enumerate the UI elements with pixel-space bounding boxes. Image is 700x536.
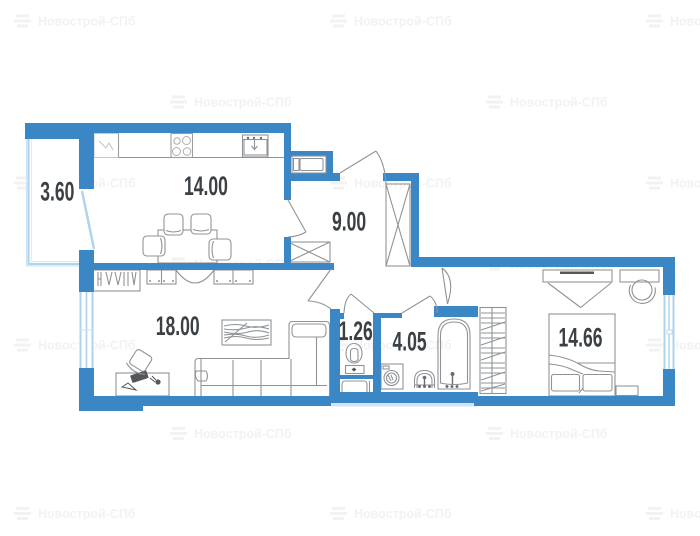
svg-text:Новострой-СПб: Новострой-СПб — [194, 427, 292, 441]
svg-text:4.05: 4.05 — [393, 326, 427, 357]
svg-text:Новострой-СПб: Новострой-СПб — [510, 96, 608, 110]
svg-text:Новострой-СПб: Новострой-СПб — [670, 15, 700, 29]
svg-text:Новострой-СПб: Новострой-СПб — [354, 507, 452, 521]
svg-text:14.00: 14.00 — [184, 170, 228, 201]
svg-text:3.60: 3.60 — [40, 176, 74, 207]
svg-text:Новострой-СПб: Новострой-СПб — [670, 507, 700, 521]
svg-text:Новострой-СПб: Новострой-СПб — [354, 15, 452, 29]
svg-text:Новострой-СПб: Новострой-СПб — [38, 15, 136, 29]
svg-text:Новострой-СПб: Новострой-СПб — [670, 177, 700, 191]
svg-text:14.66: 14.66 — [559, 322, 603, 353]
svg-text:9.00: 9.00 — [332, 206, 366, 237]
svg-text:18.00: 18.00 — [156, 310, 200, 341]
svg-text:Новострой-СПб: Новострой-СПб — [38, 507, 136, 521]
svg-text:1.26: 1.26 — [339, 315, 373, 346]
svg-text:Новострой-СПб: Новострой-СПб — [510, 427, 608, 441]
svg-text:Новострой-СПб: Новострой-СПб — [194, 96, 292, 110]
